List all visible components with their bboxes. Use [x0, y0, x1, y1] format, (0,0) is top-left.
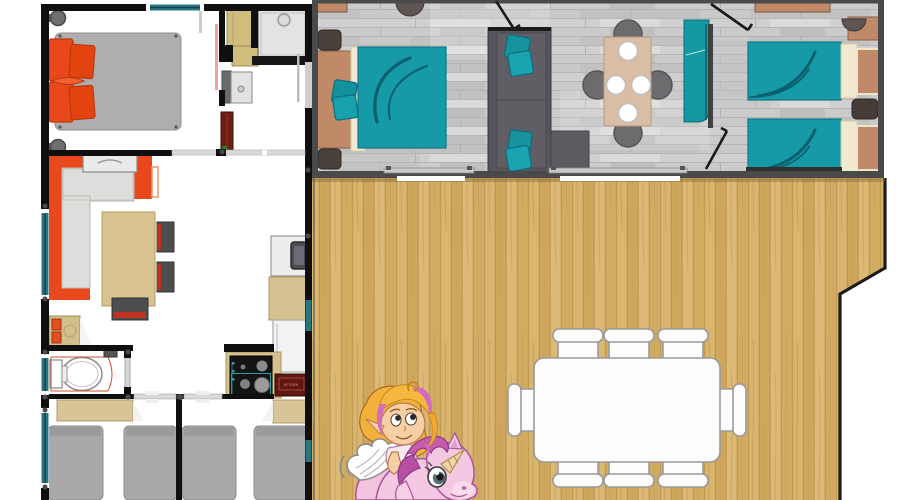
svg-text:KITCHEN: KITCHEN [284, 383, 299, 387]
